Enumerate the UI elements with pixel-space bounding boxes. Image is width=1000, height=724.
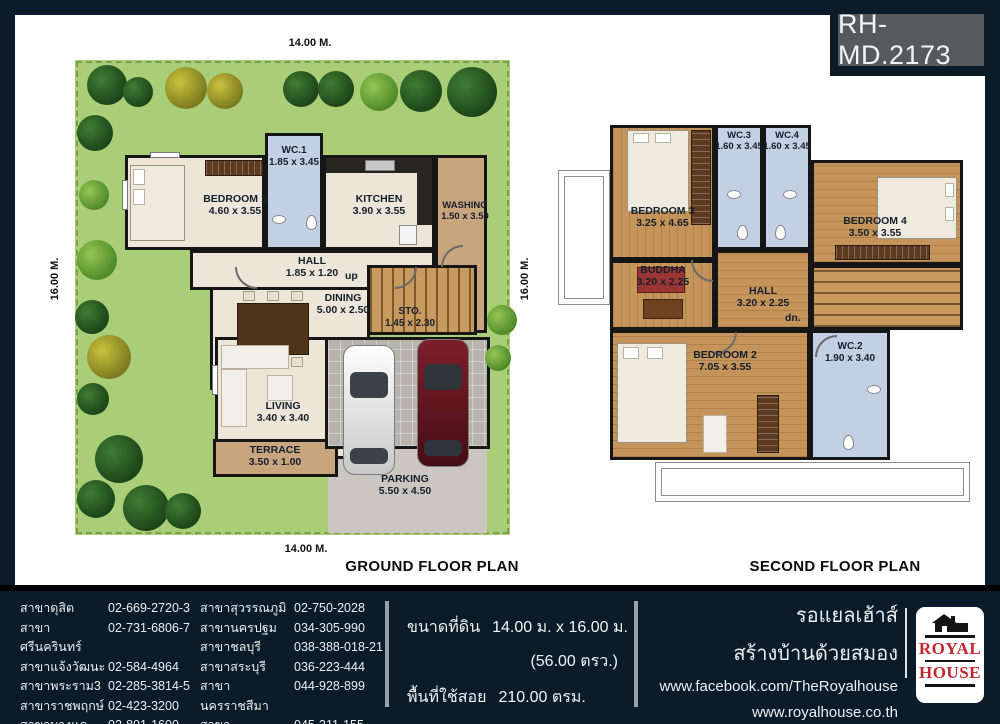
sheet-content: BEDROOM 1 4.60 x 3.55 WC.1 1.85 x 3.45 K… <box>15 15 985 585</box>
royal-house-logo: ROYAL HOUSE <box>916 607 984 703</box>
pillow-icon <box>945 207 954 221</box>
branch-row: สาขานครปฐม034-305-990 <box>200 619 383 639</box>
land-size-value: 14.00 ม. x 16.00 ม. <box>492 615 628 640</box>
tree-icon <box>77 240 117 280</box>
dimension-label: 16.00 M. <box>49 244 61 314</box>
logo-bar <box>925 684 975 687</box>
pillow-icon <box>655 133 671 143</box>
wardrobe-icon <box>835 245 930 260</box>
tree-icon <box>87 65 127 105</box>
room-label: WC.4 1.60 x 3.45 <box>761 130 813 152</box>
chair-icon <box>267 291 279 301</box>
room-label: BEDROOM 4 3.50 x 3.55 <box>805 215 945 240</box>
logo-word-royal: ROYAL <box>919 640 981 658</box>
sink-icon <box>783 190 797 199</box>
room-label: BEDROOM 1 4.60 x 3.55 <box>175 193 295 218</box>
up-label: up <box>345 270 358 282</box>
branch-row: สาขาแจ้งวัฒนะ02-584-4964 <box>20 658 190 678</box>
fridge-icon <box>399 225 417 245</box>
branch-row: สาขาสุวรรณภูมิ02-750-2028 <box>200 599 383 619</box>
toilet-icon <box>737 225 748 240</box>
usable-area-value: 210.00 ตรม. <box>498 685 585 710</box>
room-label: LIVING 3.40 x 3.40 <box>233 400 333 425</box>
sink-icon <box>867 385 881 394</box>
model-code-badge: RH-MD.2173 <box>838 14 984 66</box>
branch-row: สาขาราชพฤกษ์02-423-3200 <box>20 697 190 717</box>
window-icon <box>212 365 218 395</box>
room-label: WC.3 1.60 x 3.45 <box>713 130 765 152</box>
branch-row: สาขาสระบุรี036-223-444 <box>200 658 383 678</box>
room-label: STO. 1.45 x 2.30 <box>370 306 450 330</box>
tree-icon <box>123 485 169 531</box>
roof-outline <box>655 462 970 502</box>
wardrobe-icon <box>205 160 263 176</box>
car-icon <box>343 345 395 475</box>
logo-word-house: HOUSE <box>919 664 981 682</box>
window-icon <box>150 152 180 158</box>
room-label: WASHING 1.50 x 3.50 <box>420 200 510 222</box>
tree-icon <box>318 71 354 107</box>
tree-icon <box>77 383 109 415</box>
sink-icon <box>365 160 395 171</box>
tree-icon <box>283 71 319 107</box>
dn-label: dn. <box>785 312 801 324</box>
branch-list-2: สาขาสุวรรณภูมิ02-750-2028 สาขานครปฐม034-… <box>200 599 383 724</box>
plan-sheet: BEDROOM 1 4.60 x 3.55 WC.1 1.85 x 3.45 K… <box>0 0 1000 724</box>
tree-icon <box>77 115 113 151</box>
sofa-icon <box>221 345 289 369</box>
tree-icon <box>79 180 109 210</box>
car-icon <box>417 339 469 467</box>
dimension-label: 14.00 M. <box>260 37 360 49</box>
room-label: PARKING 5.50 x 4.50 <box>350 473 460 498</box>
footer-divider <box>905 608 907 678</box>
land-spec-panel: ขนาดที่ดิน14.00 ม. x 16.00 ม. (56.00 ตรว… <box>385 601 638 707</box>
branch-row: สาขาดุสิต02-669-2720-3 <box>20 599 190 619</box>
pillow-icon <box>133 189 145 205</box>
tree-icon <box>165 493 201 529</box>
chair-icon <box>291 291 303 301</box>
dimension-label: 16.00 M. <box>519 244 531 314</box>
website-url[interactable]: www.royalhouse.co.th <box>618 704 898 721</box>
tree-icon <box>400 70 442 112</box>
room-label: WC.1 1.85 x 3.45 <box>266 145 322 169</box>
land-size-sqwah: (56.00 ตรว.) <box>407 649 618 674</box>
pillow-icon <box>633 133 649 143</box>
tree-icon <box>487 305 517 335</box>
altar-table-icon <box>643 299 683 319</box>
brand-name-thai: รอแยลเฮ้าส์ <box>618 599 898 631</box>
logo-bar <box>925 635 975 638</box>
toilet-icon <box>843 435 854 450</box>
house-icon <box>930 613 970 633</box>
room-label: WC.2 1.90 x 3.40 <box>808 341 892 365</box>
usable-area-label: พื้นที่ใช้สอย <box>407 685 486 710</box>
dimension-label: 14.00 M. <box>256 543 356 555</box>
balcony-outline <box>558 170 610 305</box>
toilet-icon <box>306 215 317 230</box>
tree-icon <box>87 335 131 379</box>
pillow-icon <box>623 347 639 359</box>
ground-floor-title: GROUND FLOOR PLAN <box>332 558 532 575</box>
room-label: BUDDHA 3.20 x 2.25 <box>613 264 713 289</box>
wardrobe-icon <box>757 395 779 453</box>
sink-icon <box>727 190 741 199</box>
room-label: KITCHEN 3.90 x 3.55 <box>333 193 425 218</box>
brand-slogan-thai: สร้างบ้านด้วยสมอง <box>618 637 898 669</box>
room-label: BEDROOM 2 7.05 x 3.55 <box>655 349 795 374</box>
tree-icon <box>95 435 143 483</box>
tree-icon <box>485 345 511 371</box>
stairs-second <box>811 265 963 330</box>
armchair-icon <box>267 375 293 401</box>
room-label: HALL 1.85 x 1.20 <box>267 255 357 280</box>
room-label: TERRACE 3.50 x 1.00 <box>220 444 330 469</box>
window-icon <box>122 180 128 210</box>
branch-row: สาขานครราชสีมา044-928-899 <box>200 677 383 716</box>
tree-icon <box>165 67 207 109</box>
branch-row: สาขาบางแค02-801-1600 <box>20 716 190 724</box>
pillow-icon <box>945 183 954 197</box>
branch-row: สาขาศรีนครินทร์02-731-6806-7 <box>20 619 190 658</box>
brand-block: รอแยลเฮ้าส์ สร้างบ้านด้วยสมอง www.facebo… <box>618 599 898 721</box>
toilet-icon <box>775 225 786 240</box>
tree-icon <box>123 77 153 107</box>
tree-icon <box>360 73 398 111</box>
land-size-label: ขนาดที่ดิน <box>407 615 480 640</box>
logo-bar <box>925 660 975 662</box>
tree-icon <box>75 300 109 334</box>
tree-icon <box>207 73 243 109</box>
tree-icon <box>447 67 497 117</box>
branch-row: สาขาพระราม302-285-3814-5 <box>20 677 190 697</box>
branch-row: สาขาอุบลราชธานี045-311-155 <box>200 716 383 724</box>
facebook-url[interactable]: www.facebook.com/TheRoyalhouse <box>618 678 898 695</box>
branch-row: สาขาชลบุรี038-388-018-21 <box>200 638 383 658</box>
tree-icon <box>77 480 115 518</box>
branch-list-1: สาขาดุสิต02-669-2720-3 สาขาศรีนครินทร์02… <box>20 599 190 724</box>
room-label: BEDROOM 3 3.25 x 4.65 <box>610 205 715 230</box>
second-floor-title: SECOND FLOOR PLAN <box>735 558 935 575</box>
sofa-icon <box>703 415 727 453</box>
footer: สาขาดุสิต02-669-2720-3 สาขาศรีนครินทร์02… <box>0 585 1000 724</box>
room-label: HALL 3.20 x 2.25 <box>715 285 811 310</box>
chair-icon <box>243 291 255 301</box>
pillow-icon <box>133 169 145 185</box>
chair-icon <box>291 357 303 367</box>
